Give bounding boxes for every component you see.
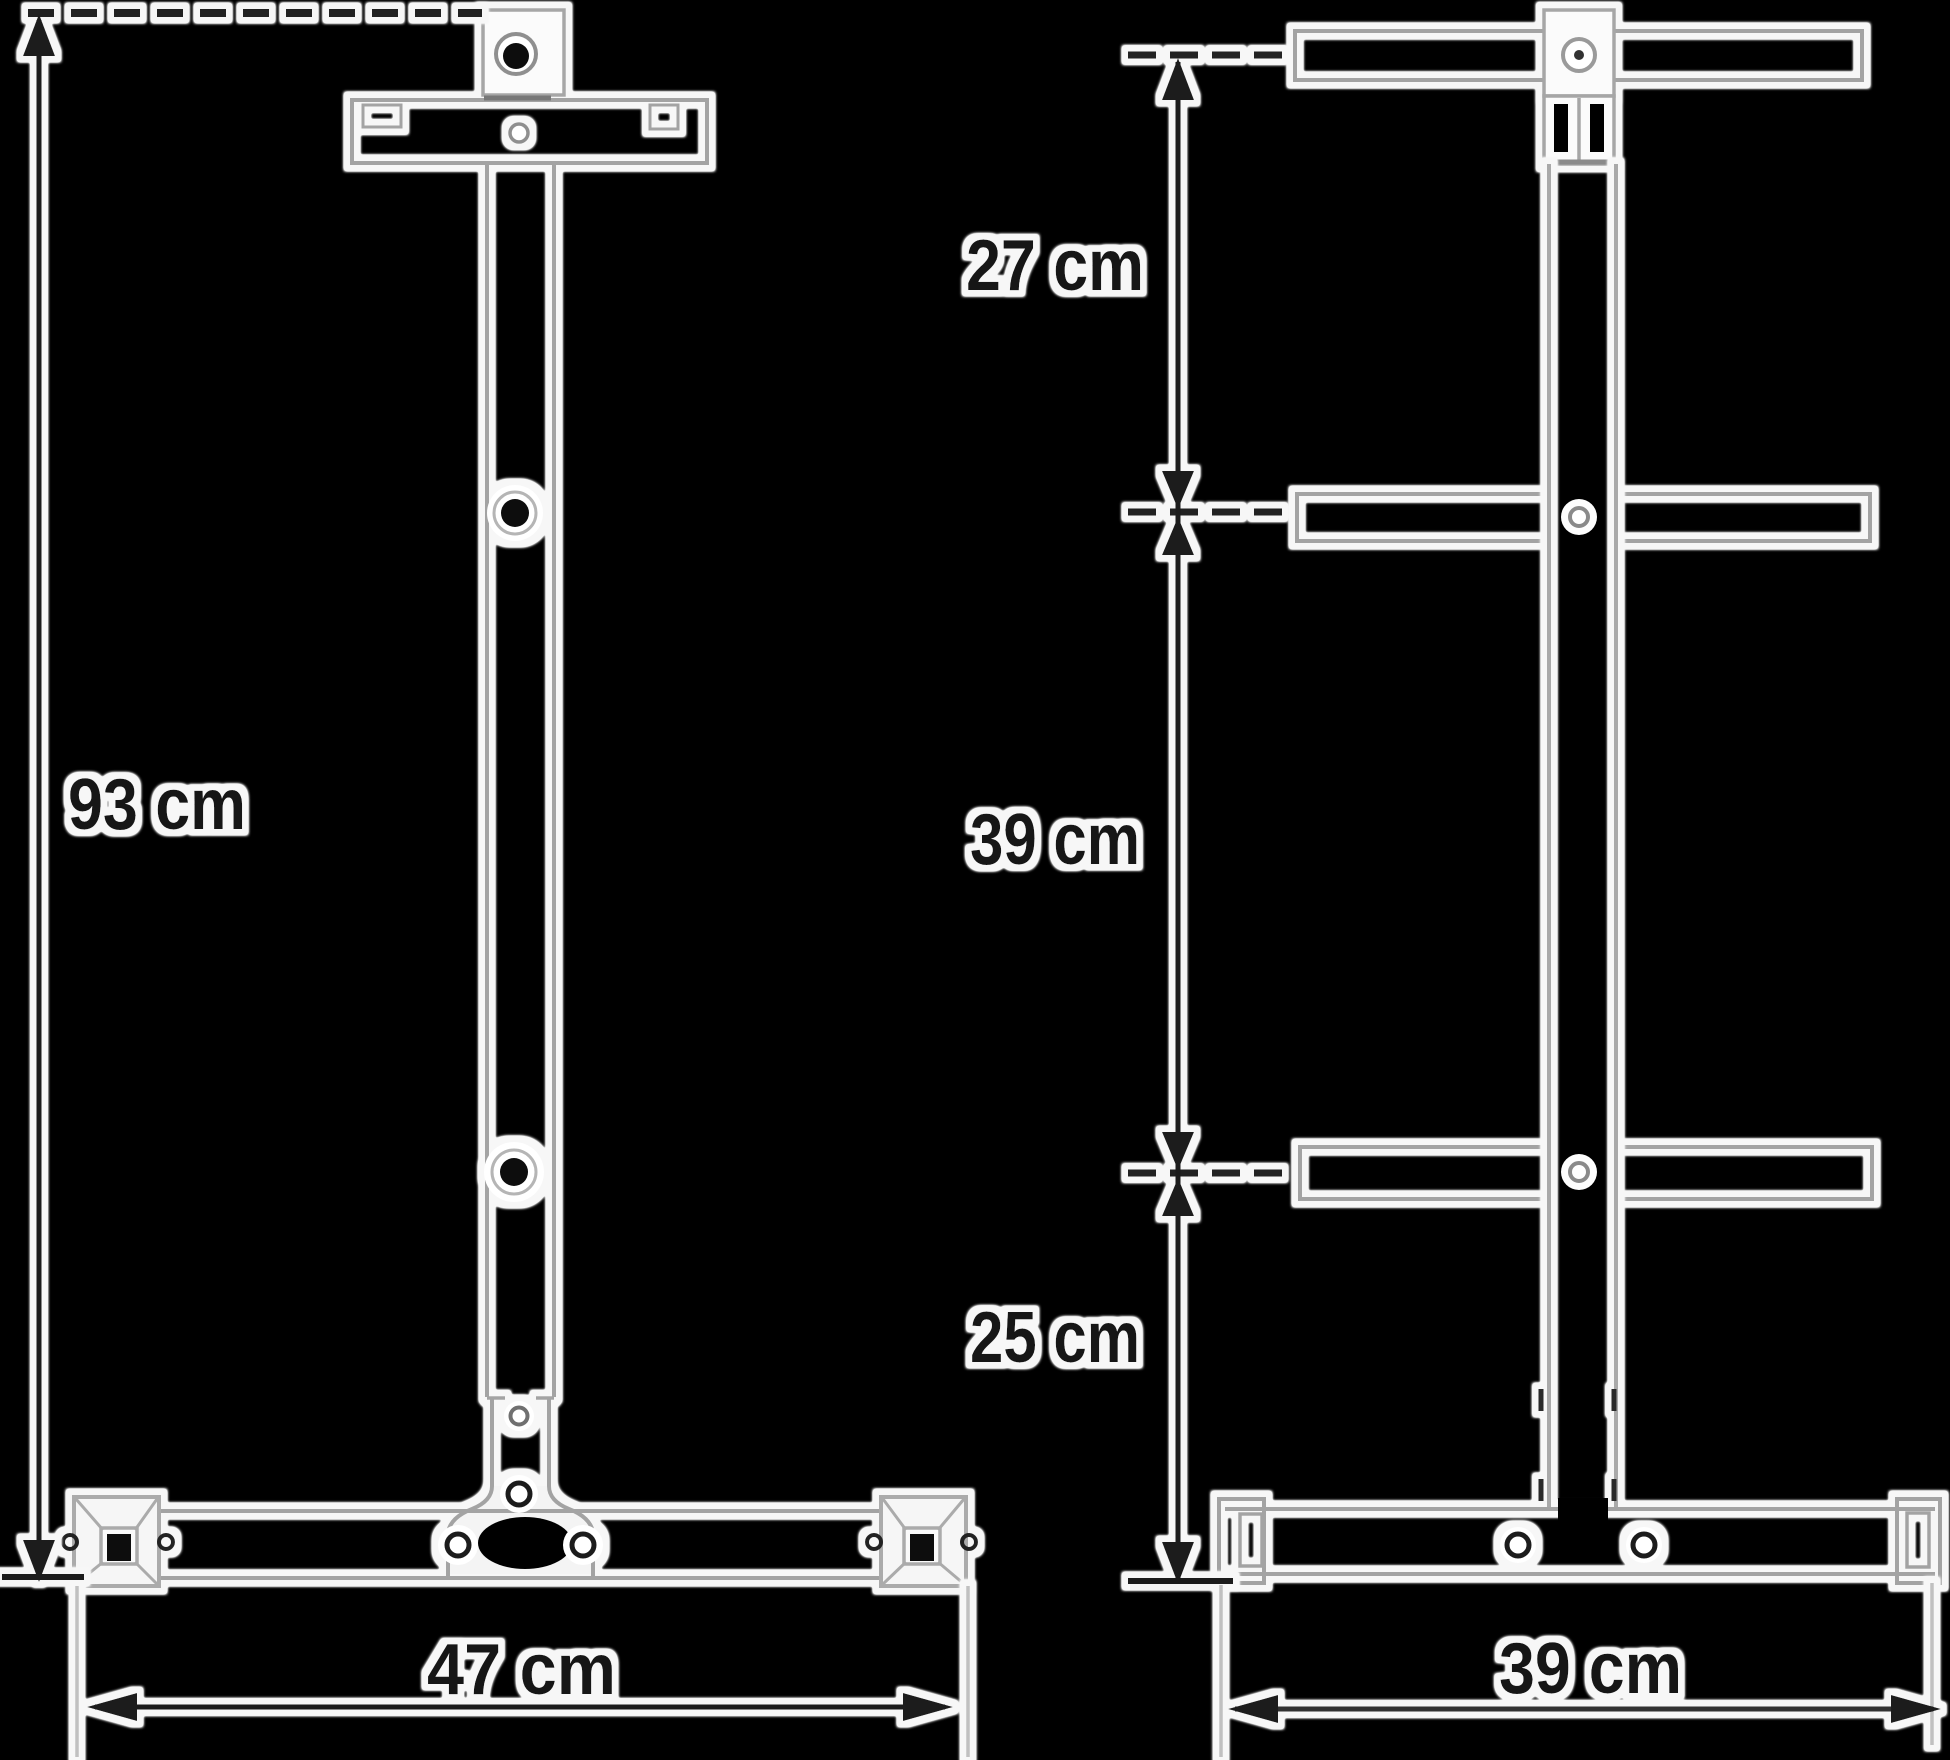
svg-text:39 cm: 39 cm <box>1499 1629 1682 1709</box>
svg-text:25 cm: 25 cm <box>970 1298 1140 1378</box>
svg-text:93 cm: 93 cm <box>68 765 246 845</box>
svg-text:39 cm: 39 cm <box>970 800 1140 880</box>
svg-text:47 cm: 47 cm <box>427 1630 616 1710</box>
svg-text:27 cm: 27 cm <box>966 226 1144 306</box>
